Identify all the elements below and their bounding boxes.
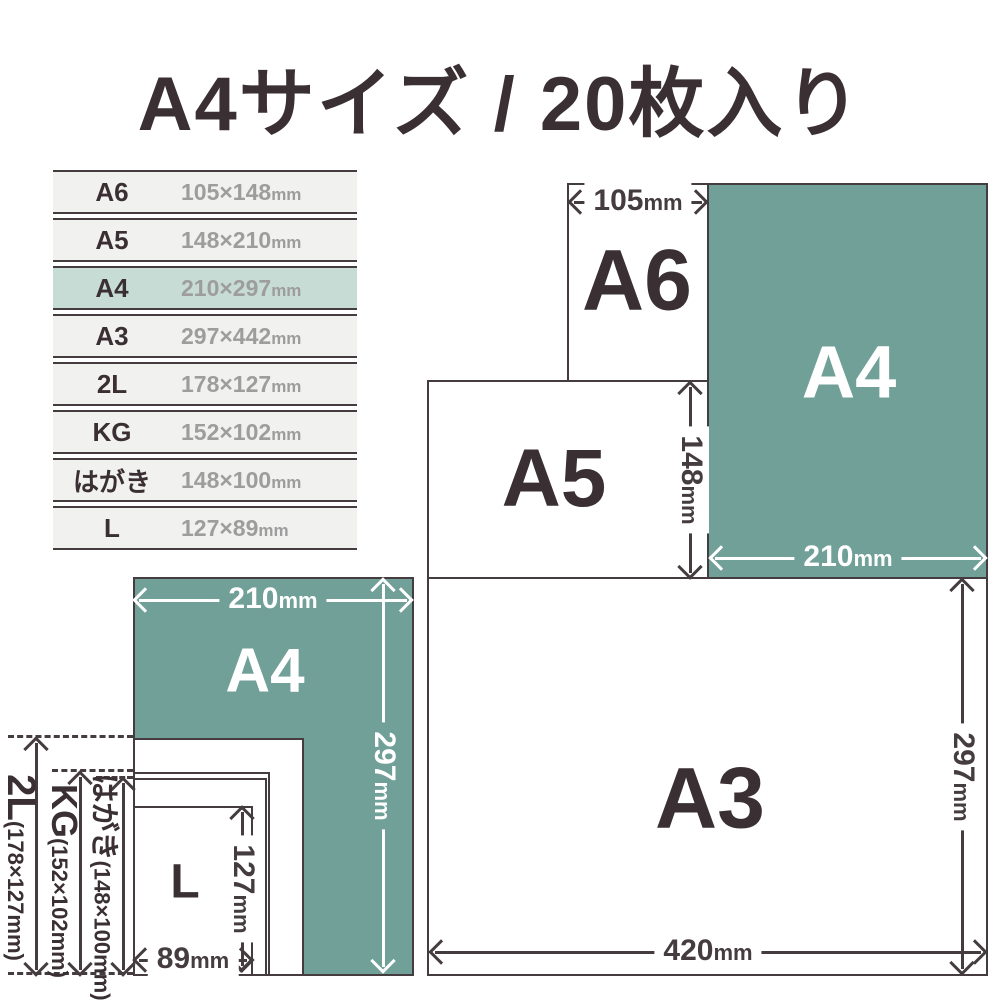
- arrowhead-down-icon: [370, 948, 395, 973]
- side-label-kg: KG(152×102mm): [46, 776, 82, 986]
- arrowhead-left-icon: [428, 939, 453, 964]
- paper-a5-label: A5: [502, 432, 607, 526]
- paper-a4-top-right-label: A4: [802, 330, 897, 415]
- dim-label: 89mm: [148, 941, 239, 979]
- size-name: A6: [53, 177, 171, 208]
- dim-arrow-a4bl-height: 297mm: [369, 581, 397, 970]
- side-label-dims: (178×127mm): [3, 820, 28, 960]
- size-dims: 148×210mm: [171, 227, 357, 254]
- dash-line-2l-top: [8, 735, 133, 738]
- size-name: A5: [53, 225, 171, 256]
- table-row-kg: KG 152×102mm: [53, 410, 357, 454]
- page-title: A4サイズ / 20枚入り: [0, 42, 1000, 152]
- paper-size-infographic: A4サイズ / 20枚入り A6 105×148mm A5 148×210mm …: [0, 0, 1000, 1000]
- size-name: KG: [53, 417, 171, 448]
- paper-a3-label: A3: [655, 750, 765, 849]
- side-label-2l: 2L(178×127mm): [2, 742, 38, 992]
- dim-arrow-a3-height: 297mm: [948, 581, 976, 972]
- dim-arrow-a5-height: 148mm: [676, 384, 704, 576]
- table-row-2l: 2L 178×127mm: [53, 362, 357, 406]
- dash-line-kg-top: [52, 769, 133, 772]
- side-label-dims: (152×102mm): [47, 838, 72, 978]
- size-dims: 105×148mm: [171, 179, 357, 206]
- size-dims: 297×442mm: [171, 323, 357, 350]
- table-row-a4-highlighted: A4 210×297mm: [53, 266, 357, 310]
- dim-label: 210mm: [219, 581, 326, 619]
- dim-label: 297mm: [943, 723, 981, 830]
- size-name: L: [53, 513, 171, 544]
- dim-arrow-l-width: 89mm: [136, 946, 250, 974]
- dim-label: 210mm: [794, 539, 901, 577]
- arrowhead-left-icon: [708, 545, 733, 570]
- side-label-hagaki: はがき(148×100mm): [89, 782, 125, 992]
- side-label-name: KG: [44, 784, 85, 838]
- arrowhead-right-icon: [962, 545, 987, 570]
- arrowhead-up-icon: [370, 577, 395, 602]
- paper-a6-label: A6: [582, 232, 692, 331]
- paper-l-label: L: [170, 855, 199, 910]
- dim-arrow-a4-width: 210mm: [712, 544, 984, 572]
- side-label-name: はがき: [88, 773, 120, 860]
- size-dims: 178×127mm: [171, 371, 357, 398]
- size-name: 2L: [53, 369, 171, 400]
- table-row-a3: A3 297×442mm: [53, 314, 357, 358]
- size-name: A4: [53, 273, 171, 304]
- table-row-a6: A6 105×148mm: [53, 170, 357, 214]
- table-row-a5: A5 148×210mm: [53, 218, 357, 262]
- table-row-l: L 127×89mm: [53, 506, 357, 550]
- paper-a4-bottom-left-label: A4: [225, 636, 304, 707]
- dim-arrow-a3-width: 420mm: [432, 938, 984, 966]
- dim-label: 105mm: [584, 183, 691, 221]
- arrowhead-right-icon: [962, 939, 987, 964]
- size-name: A3: [53, 321, 171, 352]
- dim-arrow-a6-width: 105mm: [571, 188, 705, 216]
- dim-label: 127mm: [223, 835, 261, 942]
- size-dims: 210×297mm: [171, 275, 357, 302]
- size-name: はがき: [53, 462, 171, 499]
- dim-label: 420mm: [654, 933, 761, 971]
- side-label-name: 2L: [0, 774, 43, 821]
- table-row-hagaki: はがき 148×100mm: [53, 458, 357, 502]
- arrowhead-up-icon: [229, 805, 254, 830]
- size-table: A6 105×148mm A5 148×210mm A4 210×297mm A…: [53, 170, 357, 554]
- arrowhead-up-icon: [949, 577, 974, 602]
- arrowhead-down-icon: [677, 554, 702, 579]
- arrowhead-left-icon: [132, 587, 157, 612]
- arrowhead-up-icon: [677, 380, 702, 405]
- size-dims: 148×100mm: [171, 467, 357, 494]
- side-label-dims: (148×100mm): [90, 860, 115, 1000]
- dim-label: 148mm: [671, 426, 709, 533]
- size-dims: 127×89mm: [171, 515, 357, 542]
- size-dims: 152×102mm: [171, 419, 357, 446]
- dim-label: 297mm: [364, 722, 402, 829]
